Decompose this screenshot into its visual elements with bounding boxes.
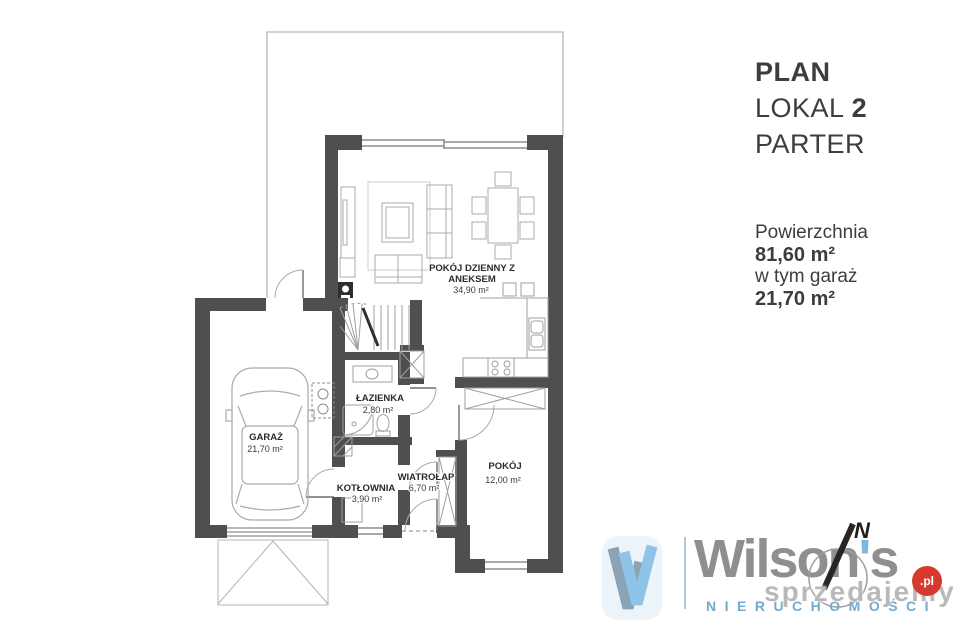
garage-door (227, 528, 312, 536)
svg-text:21,70 m²: 21,70 m² (247, 444, 283, 454)
area-label: Powierzchnia (755, 222, 868, 244)
watermark-pl-badge: .pl (912, 566, 942, 596)
svg-text:POKÓJ DZIENNY Z: POKÓJ DZIENNY Z (429, 262, 515, 274)
wardrobes (439, 388, 545, 526)
area-subvalue: 21,70 m² (755, 288, 868, 310)
svg-text:GARAŻ: GARAŻ (249, 432, 283, 443)
area-value: 81,60 m² (755, 244, 868, 266)
svg-text:WIATROŁAP: WIATROŁAP (398, 472, 455, 483)
plan-title-line1: PLAN (755, 54, 867, 90)
svg-text:12,00 m²: 12,00 m² (485, 475, 521, 485)
label-boiler-room: KOTŁOWNIA 3,90 m² (337, 483, 396, 504)
plot-boundary-line (267, 32, 563, 298)
driveway (218, 540, 328, 605)
plan-title: PLAN LOKAL 2 PARTER (755, 54, 867, 162)
toilet (376, 415, 390, 437)
svg-text:POKÓJ: POKÓJ (488, 460, 521, 472)
plan-title-line3: PARTER (755, 126, 867, 162)
svg-text:ŁAZIENKA: ŁAZIENKA (356, 393, 404, 404)
fireplace (338, 282, 353, 298)
svg-text:34,90 m²: 34,90 m² (453, 285, 489, 295)
area-sublabel: w tym garaż (755, 266, 868, 288)
label-bathroom: ŁAZIENKA 2,80 m² (356, 393, 404, 415)
stairs-handrail (363, 308, 378, 346)
label-garage: GARAŻ 21,70 m² (247, 432, 283, 454)
svg-text:ANEKSEM: ANEKSEM (448, 274, 496, 285)
wilsons-logo-icon (602, 536, 662, 620)
label-vestibule: WIATROŁAP 6,70 m² (398, 472, 455, 493)
kitchen-sink (529, 318, 545, 350)
svg-text:3,90 m²: 3,90 m² (352, 494, 383, 504)
kitchen (463, 283, 548, 377)
kitchen-stove (488, 358, 514, 377)
floor-plan: POKÓJ DZIENNY Z ANEKSEM 34,90 m² GARAŻ 2… (0, 0, 700, 627)
logo-w-ribbon-icon (602, 536, 662, 620)
boiler-dashed (312, 383, 334, 418)
svg-text:6,70 m²: 6,70 m² (409, 483, 440, 493)
area-summary: Powierzchnia 81,60 m² w tym garaż 21,70 … (755, 222, 868, 310)
svg-text:KOTŁOWNIA: KOTŁOWNIA (337, 483, 396, 494)
label-room: POKÓJ 12,00 m² (485, 460, 521, 485)
plan-title-line2: LOKAL 2 (755, 90, 867, 126)
label-living-room: POKÓJ DZIENNY Z ANEKSEM 34,90 m² (429, 262, 515, 295)
svg-text:N: N (854, 518, 871, 543)
svg-text:2,80 m²: 2,80 m² (363, 405, 394, 415)
stairs (340, 303, 409, 350)
logo-divider (684, 537, 686, 609)
dining-set (472, 172, 534, 259)
